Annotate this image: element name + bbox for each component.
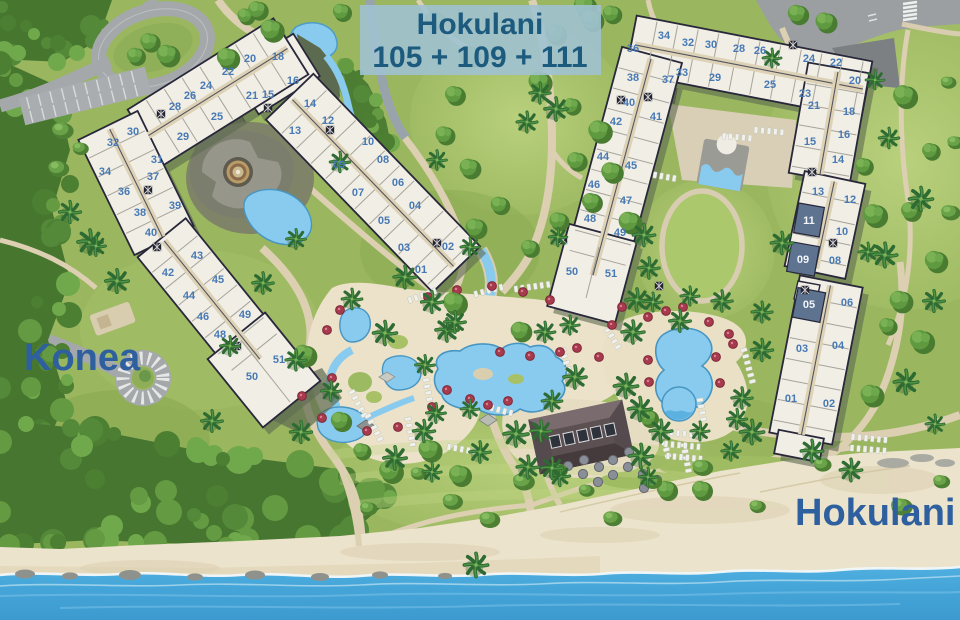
svg-text:06: 06 (392, 177, 404, 189)
svg-text:21: 21 (246, 90, 258, 102)
svg-text:13: 13 (289, 125, 301, 137)
svg-text:20: 20 (849, 75, 861, 87)
svg-text:33: 33 (676, 67, 688, 79)
svg-text:49: 49 (614, 227, 626, 239)
svg-text:12: 12 (322, 115, 334, 127)
svg-text:04: 04 (832, 340, 845, 352)
svg-text:01: 01 (415, 264, 427, 276)
svg-text:09: 09 (797, 254, 809, 266)
svg-text:08: 08 (377, 154, 389, 166)
svg-text:04: 04 (409, 200, 422, 212)
svg-text:08: 08 (829, 255, 841, 267)
svg-text:02: 02 (823, 398, 835, 410)
svg-text:42: 42 (610, 116, 622, 128)
svg-text:05: 05 (378, 215, 390, 227)
svg-text:10: 10 (362, 136, 374, 148)
svg-text:34: 34 (658, 30, 671, 42)
svg-text:30: 30 (127, 126, 139, 138)
svg-text:15: 15 (804, 136, 816, 148)
svg-text:25: 25 (764, 79, 776, 91)
svg-text:40: 40 (623, 97, 635, 109)
svg-text:Hokulani: Hokulani (417, 8, 544, 41)
svg-text:12: 12 (844, 194, 856, 206)
svg-text:48: 48 (584, 213, 596, 225)
svg-text:44: 44 (183, 290, 196, 302)
svg-text:28: 28 (169, 101, 181, 113)
svg-text:46: 46 (197, 311, 209, 323)
svg-text:29: 29 (177, 131, 189, 143)
svg-text:105 + 109 + 111: 105 + 109 + 111 (372, 41, 587, 74)
svg-text:16: 16 (287, 75, 299, 87)
svg-text:02: 02 (442, 241, 454, 253)
svg-text:11: 11 (803, 215, 815, 227)
svg-text:26: 26 (754, 45, 766, 57)
svg-text:30: 30 (705, 39, 717, 51)
svg-text:38: 38 (134, 207, 146, 219)
svg-text:26: 26 (184, 90, 196, 102)
svg-text:16: 16 (838, 129, 850, 141)
svg-text:50: 50 (246, 371, 258, 383)
svg-text:37: 37 (147, 171, 159, 183)
svg-text:01: 01 (785, 393, 797, 405)
svg-text:22: 22 (830, 57, 842, 69)
svg-text:23: 23 (799, 88, 811, 100)
svg-text:10: 10 (836, 226, 848, 238)
svg-text:45: 45 (212, 274, 224, 286)
svg-text:21: 21 (808, 100, 820, 112)
svg-text:46: 46 (588, 179, 600, 191)
svg-text:24: 24 (200, 80, 213, 92)
svg-text:34: 34 (99, 166, 112, 178)
svg-text:03: 03 (796, 343, 808, 355)
svg-text:20: 20 (244, 53, 256, 65)
svg-text:45: 45 (625, 160, 637, 172)
svg-text:03: 03 (398, 242, 410, 254)
svg-text:32: 32 (107, 137, 119, 149)
svg-text:40: 40 (145, 227, 157, 239)
svg-text:51: 51 (273, 354, 285, 366)
svg-text:39: 39 (169, 200, 181, 212)
svg-text:25: 25 (211, 111, 223, 123)
svg-text:09: 09 (333, 159, 345, 171)
svg-text:24: 24 (803, 53, 816, 65)
svg-text:15: 15 (262, 89, 274, 101)
svg-text:48: 48 (214, 329, 226, 341)
svg-text:47: 47 (620, 195, 632, 207)
svg-text:28: 28 (733, 43, 745, 55)
svg-text:37: 37 (662, 74, 674, 86)
svg-text:Konea: Konea (24, 337, 141, 379)
svg-text:38: 38 (627, 72, 639, 84)
svg-text:07: 07 (352, 187, 364, 199)
svg-text:36: 36 (627, 43, 639, 55)
svg-text:29: 29 (709, 72, 721, 84)
svg-text:Hokulani: Hokulani (795, 492, 955, 534)
svg-text:41: 41 (650, 111, 662, 123)
svg-text:14: 14 (304, 98, 317, 110)
svg-text:22: 22 (222, 66, 234, 78)
svg-text:06: 06 (841, 297, 853, 309)
svg-text:31: 31 (151, 154, 163, 166)
svg-text:14: 14 (832, 154, 845, 166)
svg-text:18: 18 (843, 106, 855, 118)
svg-text:51: 51 (605, 268, 617, 280)
svg-text:18: 18 (272, 51, 284, 63)
svg-text:36: 36 (118, 186, 130, 198)
svg-text:50: 50 (566, 266, 578, 278)
svg-text:13: 13 (812, 186, 824, 198)
svg-text:44: 44 (597, 151, 610, 163)
svg-text:43: 43 (191, 250, 203, 262)
svg-text:32: 32 (682, 37, 694, 49)
svg-text:49: 49 (239, 309, 251, 321)
svg-text:42: 42 (162, 267, 174, 279)
svg-text:05: 05 (803, 299, 815, 311)
